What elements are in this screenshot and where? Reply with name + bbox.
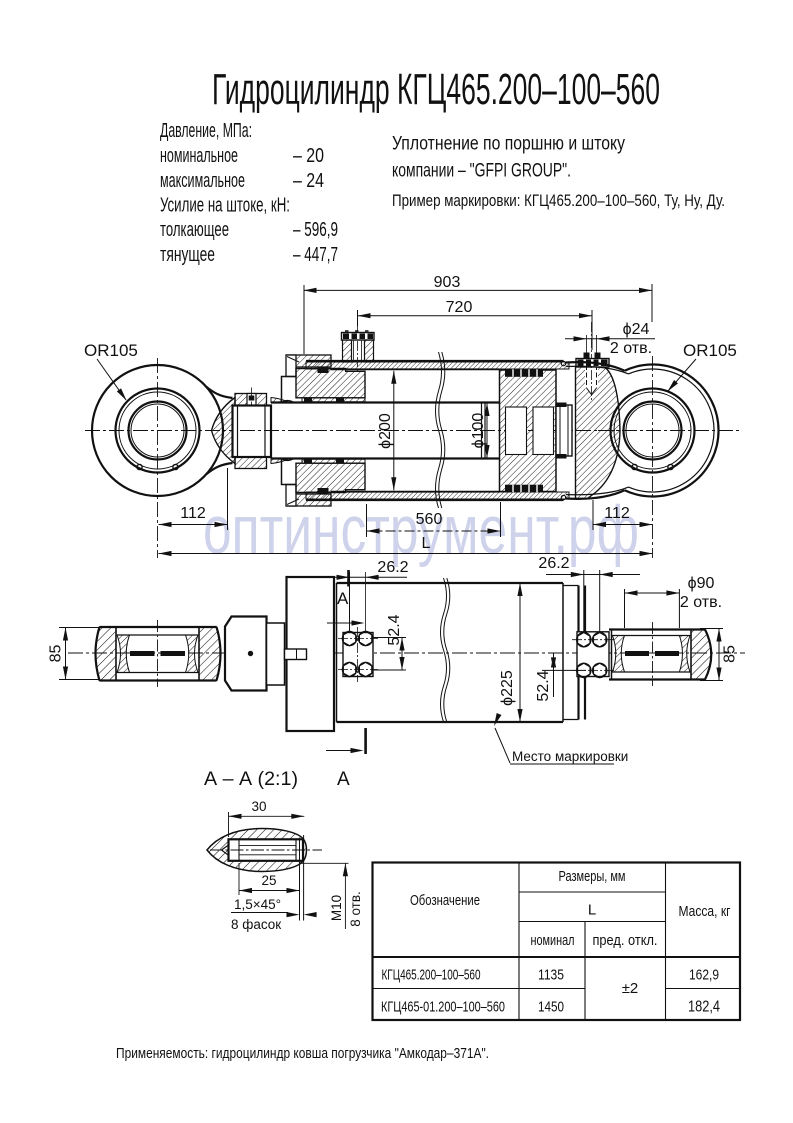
- svg-text:L: L: [422, 535, 431, 552]
- svg-text:тянущее: тянущее: [160, 244, 215, 266]
- svg-text:КГЦ465-01.200–100–560: КГЦ465-01.200–100–560: [381, 999, 505, 1016]
- svg-text:М10: М10: [329, 895, 344, 921]
- svg-text:номинальное: номинальное: [160, 145, 238, 167]
- svg-text:А: А: [337, 589, 349, 608]
- svg-text:1,5×45°: 1,5×45°: [234, 897, 281, 912]
- svg-text:Масса, кг: Масса, кг: [679, 903, 731, 920]
- svg-text:L: L: [588, 902, 596, 919]
- svg-text:Пример маркировки: КГЦ465.200–: Пример маркировки: КГЦ465.200–100–560, Т…: [392, 192, 725, 210]
- svg-text:Место маркировки: Место маркировки: [512, 749, 628, 764]
- svg-text:2 отв.: 2 отв.: [680, 594, 722, 611]
- svg-text:А – А (2:1): А – А (2:1): [204, 769, 298, 790]
- svg-text:ϕ90: ϕ90: [688, 575, 715, 592]
- svg-text:толкающее: толкающее: [160, 219, 229, 241]
- svg-text:720: 720: [446, 299, 473, 316]
- svg-text:1135: 1135: [538, 967, 564, 984]
- svg-text:А: А: [337, 769, 350, 790]
- svg-text:ϕ24: ϕ24: [623, 321, 650, 338]
- svg-text:пред. откл.: пред. откл.: [593, 932, 658, 949]
- svg-text:– 20: – 20: [293, 145, 324, 167]
- svg-text:2 отв.: 2 отв.: [610, 340, 652, 357]
- svg-text:560: 560: [416, 511, 443, 528]
- svg-text:1450: 1450: [538, 999, 564, 1016]
- svg-text:Уплотнение по поршню и штоку: Уплотнение по поршню и штоку: [392, 134, 625, 155]
- svg-text:26.2: 26.2: [377, 559, 408, 576]
- svg-text:максимальное: максимальное: [160, 170, 245, 192]
- svg-text:ϕ200: ϕ200: [377, 413, 394, 449]
- svg-text:8 отв.: 8 отв.: [348, 891, 363, 927]
- svg-text:8 фасок: 8 фасок: [231, 917, 281, 932]
- svg-text:30: 30: [251, 799, 266, 814]
- svg-text:52.4: 52.4: [386, 614, 403, 645]
- svg-text:903: 903: [434, 274, 461, 291]
- svg-text:162,9: 162,9: [689, 967, 719, 984]
- svg-text:26.2: 26.2: [538, 555, 569, 572]
- svg-text:номинал: номинал: [531, 932, 575, 949]
- svg-text:182,4: 182,4: [688, 999, 720, 1016]
- svg-text:КГЦ465.200–100–560: КГЦ465.200–100–560: [382, 967, 481, 984]
- svg-text:– 596,9: – 596,9: [293, 219, 338, 241]
- svg-text:компании – "GFPI GROUP".: компании – "GFPI GROUP".: [392, 161, 571, 182]
- svg-text:Размеры, мм: Размеры, мм: [559, 868, 626, 885]
- svg-text:– 24: – 24: [293, 170, 324, 192]
- svg-text:112: 112: [604, 505, 630, 522]
- svg-text:оптинструмент.рф: оптинструмент.рф: [203, 492, 639, 568]
- svg-text:ϕ100: ϕ100: [470, 413, 487, 449]
- svg-text:ϕ225: ϕ225: [499, 670, 516, 706]
- svg-text:Усилие на штоке, кН:: Усилие на штоке, кН:: [160, 195, 290, 217]
- svg-text:85: 85: [722, 645, 739, 663]
- svg-text:OR105: OR105: [84, 341, 138, 360]
- svg-text:25: 25: [261, 873, 276, 888]
- svg-text:Обозначение: Обозначение: [410, 892, 480, 909]
- svg-text:±2: ±2: [622, 980, 639, 997]
- svg-text:Гидроцилиндр КГЦ465.200–100–56: Гидроцилиндр КГЦ465.200–100–560: [212, 65, 660, 114]
- svg-text:– 447,7: – 447,7: [293, 244, 338, 266]
- svg-text:Применяемость: гидроцилиндр к: Применяемость: гидроцилиндр ковша погруз…: [116, 1046, 489, 1062]
- svg-text:112: 112: [180, 505, 206, 522]
- svg-text:85: 85: [48, 645, 65, 663]
- svg-text:OR105: OR105: [683, 341, 737, 360]
- svg-text:Давление, МПа:: Давление, МПа:: [160, 120, 252, 142]
- svg-text:52.4: 52.4: [535, 670, 552, 701]
